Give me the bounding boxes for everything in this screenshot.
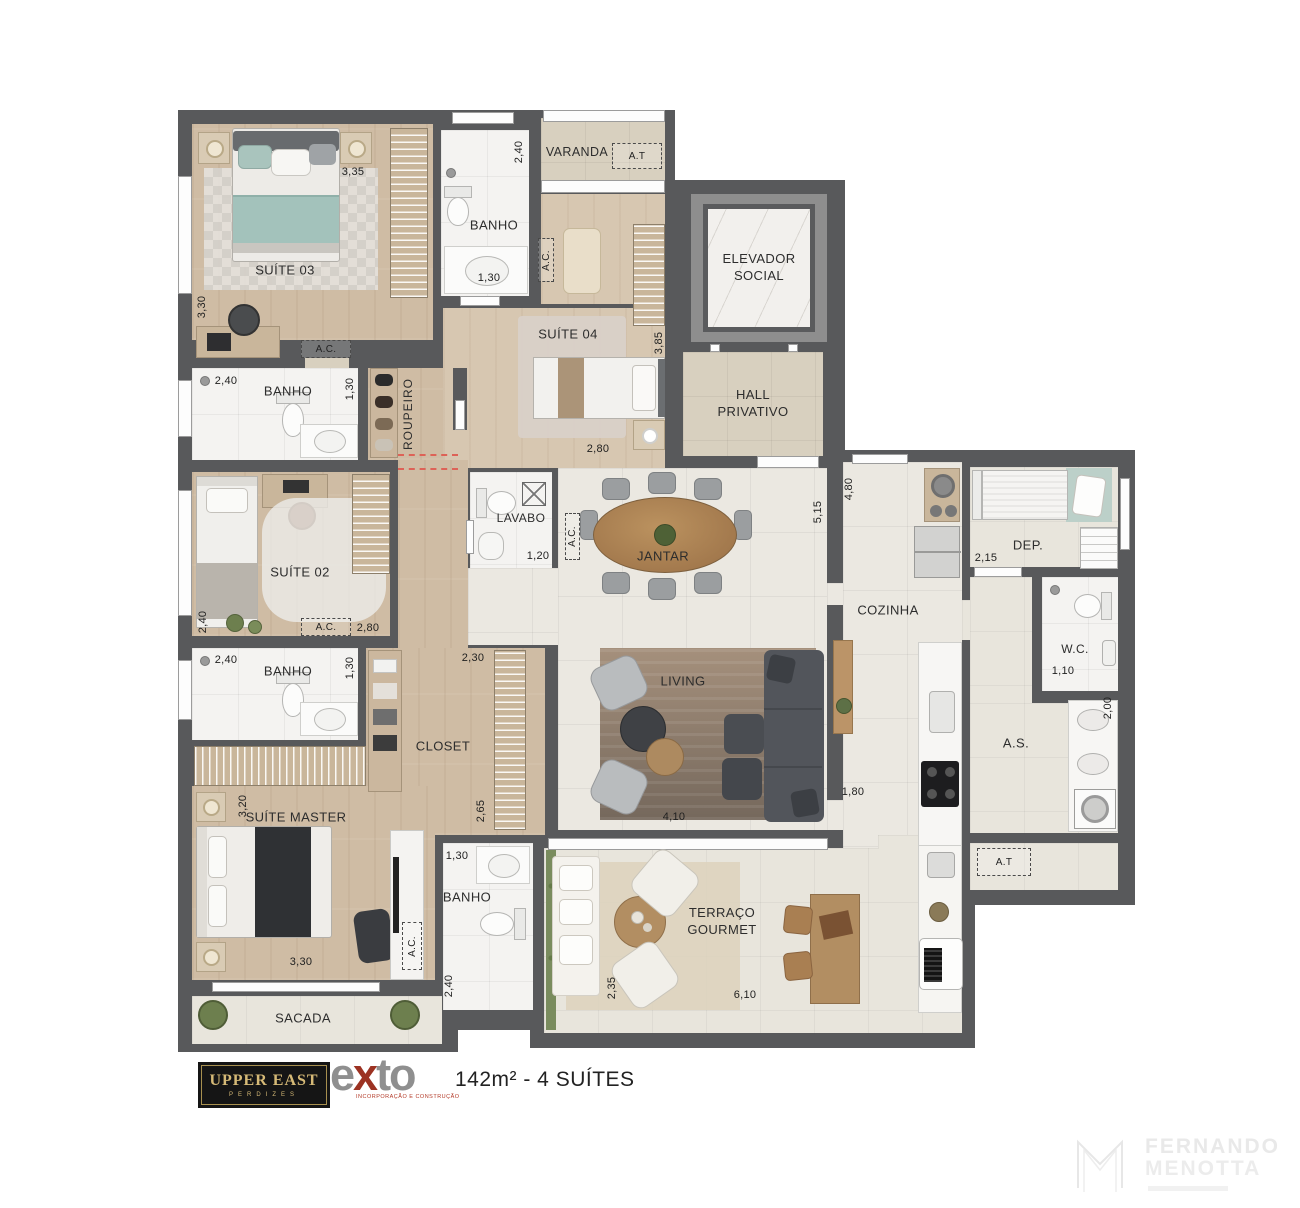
shoe-rack (370, 368, 398, 458)
label-lavabo: LAVABO (497, 511, 546, 527)
label-as: A.S. (1003, 736, 1029, 753)
elevator-door-mark-left (710, 344, 720, 352)
label-suite03: SUÍTE 03 (255, 263, 315, 280)
shaft-box (522, 482, 546, 506)
dining-chair (694, 478, 722, 500)
label-living: LIVING (660, 674, 705, 691)
bed-master (196, 826, 332, 938)
label-closet: CLOSET (416, 739, 470, 756)
dim-cozinha-h: 4,80 (843, 478, 855, 501)
ac-box-suite03: A.C. (301, 340, 351, 358)
window-cozinha (852, 454, 908, 464)
ac-label: A.C. (316, 622, 337, 633)
bed-suite04 (533, 357, 665, 419)
door-dep (974, 567, 1022, 577)
dim-banho3-h: 1,30 (344, 657, 356, 680)
label-suite04: SUÍTE 04 (538, 327, 598, 344)
dim-dep-w: 2,15 (975, 552, 998, 564)
bed-suite02 (196, 476, 258, 628)
dim-master-w: 3,30 (290, 956, 313, 968)
label-suite-master: SUÍTE MASTER (246, 810, 347, 827)
label-banho-suite03: BANHO (470, 218, 518, 235)
bench-suite04 (563, 228, 601, 294)
watermark-name-2: MENOTTA (1145, 1158, 1261, 1180)
dining-chair (648, 578, 676, 600)
dim-as-h: 2,00 (1102, 697, 1114, 720)
floor-corridor (398, 460, 468, 650)
dim-terraco-w: 6,10 (734, 989, 757, 1001)
toilet-icon (478, 908, 526, 940)
nightstand (196, 942, 226, 972)
opening-living-cozinha (827, 800, 843, 830)
dim-suite04-w: 2,80 (587, 443, 610, 455)
dim-closet-w: 2,30 (462, 652, 485, 664)
railing-varanda (541, 180, 665, 193)
nightstand (198, 132, 230, 164)
pouf (722, 758, 762, 800)
coffee-table (646, 738, 684, 776)
door-hall-jantar (757, 456, 819, 468)
dim-suite03-w: 3,35 (342, 166, 365, 178)
label-suite02: SUÍTE 02 (270, 565, 330, 582)
sink-icon (1102, 640, 1116, 666)
label-cozinha: COZINHA (857, 603, 918, 620)
at-label: A.T (996, 857, 1012, 868)
plant (836, 698, 852, 714)
label-wc: W.C. (1061, 642, 1089, 658)
watermark-tagline-bar (1148, 1186, 1228, 1191)
shower-icon (200, 376, 210, 386)
exto-letter: e (330, 1049, 353, 1100)
upper-east-logo: UPPER EAST PERDIZES (198, 1062, 330, 1108)
dim-suite02-h: 2,40 (197, 611, 209, 634)
window-banho-suite03 (452, 112, 514, 124)
label-jantar: JANTAR (637, 549, 689, 566)
outdoor-chair (783, 951, 814, 982)
dim-lavabo-w: 1,20 (527, 550, 550, 562)
at-box-varanda: A.T (612, 143, 662, 169)
ac-label: A.C. (567, 526, 578, 547)
dim-closet-h: 2,65 (475, 800, 487, 823)
plant (198, 1000, 228, 1030)
dining-chair (694, 572, 722, 594)
dim-wc-w: 1,10 (1052, 665, 1075, 677)
sink-counter (444, 246, 528, 294)
dim-banhom-w: 1,30 (446, 850, 469, 862)
window-dep (1120, 478, 1130, 550)
outdoor-chair (783, 905, 814, 936)
nightstand (196, 792, 226, 822)
window-banho-suite02 (178, 380, 192, 437)
label-roupeiro: ROUPEIRO (401, 378, 417, 450)
floor-passage-living (468, 568, 558, 645)
label-banho3: BANHO (264, 664, 312, 681)
sink-counter (476, 846, 530, 884)
at-label: A.T (629, 151, 645, 162)
dresser (1080, 527, 1118, 569)
laundry-counter (1068, 700, 1118, 832)
outdoor-sofa (552, 856, 600, 996)
shower-icon (1050, 585, 1060, 595)
terrace-counter (918, 845, 962, 1013)
ac-box-suite02: A.C. (301, 618, 351, 636)
toilet-icon (1074, 592, 1112, 620)
ac-label: A.C. (407, 936, 418, 957)
label-sacada: SACADA (275, 1011, 331, 1028)
ac-box-suite04: A.C. (538, 238, 554, 282)
window-suite03 (178, 176, 192, 294)
dim-master-h: 3,20 (237, 795, 249, 818)
dim-suite03-h: 3,30 (196, 296, 208, 319)
at-box-servico: A.T (977, 848, 1031, 876)
label-hall: HALL PRIVATIVO (717, 387, 788, 421)
opening-jantar-cozinha (827, 583, 843, 605)
window-sacada (212, 982, 380, 992)
door-banho-suite03 (460, 296, 500, 306)
ac-label: A.C. (316, 344, 337, 355)
dim-banho3-w: 2,40 (215, 654, 238, 666)
outdoor-dining-table (810, 894, 860, 1004)
wardrobe-master (194, 746, 366, 786)
area-text: 142m² - 4 SUÍTES (455, 1068, 635, 1092)
dining-chair (602, 478, 630, 500)
floor-plan-page: A.T A.C. A.C. A.C. (0, 0, 1300, 1208)
wardrobe-suite02 (352, 474, 390, 574)
sofa (764, 650, 824, 822)
watermark (1072, 1130, 1130, 1199)
door-lavabo (466, 520, 474, 554)
ac-box-jantar: A.C. (565, 513, 580, 560)
exto-logo: exto (330, 1052, 415, 1097)
label-elevador: ELEVADOR SOCIAL (722, 251, 795, 285)
watermark-m-icon (1072, 1130, 1130, 1194)
label-banho-suite02: BANHO (264, 384, 312, 401)
dining-chair (648, 472, 676, 494)
dim-pass-w: 1,80 (842, 786, 865, 798)
dim-living-w: 4,10 (663, 811, 686, 823)
dim-terraco-h: 2,35 (606, 977, 618, 1000)
window-banho3 (178, 660, 192, 720)
toilet-icon (444, 186, 472, 228)
label-varanda: VARANDA (546, 144, 608, 160)
plant (248, 620, 262, 634)
door-suite03 (305, 358, 349, 368)
ac-label: A.C. (541, 250, 552, 271)
plant (390, 1000, 420, 1030)
sink-icon (478, 532, 504, 560)
dim-suite04-h: 3,85 (653, 332, 665, 355)
brand-sub: PERDIZES (229, 1092, 299, 1098)
appliance-tower (924, 468, 960, 522)
console (833, 640, 853, 734)
watermark-name-1: FERNANDO (1145, 1136, 1280, 1158)
exto-tagline: INCORPORAÇÃO E CONSTRUÇÃO (356, 1094, 460, 1100)
label-terraco: TERRAÇO GOURMET (687, 905, 756, 939)
sink-counter (300, 424, 358, 458)
dim-banho03-h: 2,40 (513, 141, 525, 164)
table-plant (654, 524, 676, 546)
dim-banho03-w: 1,30 (478, 272, 501, 284)
dining-chair (602, 572, 630, 594)
nightstand (340, 132, 372, 164)
red-dashed-line (398, 468, 458, 470)
opening-cozinha-as (962, 600, 970, 640)
closet-wardrobe (494, 650, 526, 830)
window-suite02 (178, 490, 192, 616)
fridge (914, 526, 960, 578)
floor-as-upper (970, 577, 1032, 703)
dim-banhom-h: 2,40 (443, 975, 455, 998)
pouf (724, 714, 764, 754)
wardrobe-suite03 (390, 128, 428, 298)
sink-counter (300, 702, 358, 736)
dim-suite02-w: 2,80 (357, 622, 380, 634)
desk-chair (228, 304, 260, 336)
door-terraco (548, 838, 828, 850)
red-dashed-line (398, 454, 458, 456)
dim-jantar-h: 5,15 (812, 501, 824, 524)
shower-icon (200, 656, 210, 666)
nightstand (633, 420, 665, 450)
ac-box-master: A.C. (402, 922, 422, 970)
closet-shelves (368, 650, 402, 792)
lounge-chair (353, 908, 396, 965)
wardrobe-suite04 (633, 224, 665, 326)
exto-letters: to (376, 1049, 414, 1100)
label-banho-master: BANHO (443, 890, 491, 907)
bed-suite03 (232, 128, 340, 262)
exto-letter-x: x (353, 1049, 376, 1100)
label-dep: DEP. (1013, 538, 1043, 555)
window-varanda (543, 110, 665, 122)
dim-banho02-h: 1,30 (344, 378, 356, 401)
bed-dep (972, 468, 1112, 522)
brand-name: UPPER EAST (209, 1073, 318, 1089)
dim-banho02-w: 2,40 (215, 375, 238, 387)
plant (226, 614, 244, 632)
door-suite04 (455, 400, 465, 430)
shower-icon (446, 168, 456, 178)
elevator-door-mark-right (788, 344, 798, 352)
